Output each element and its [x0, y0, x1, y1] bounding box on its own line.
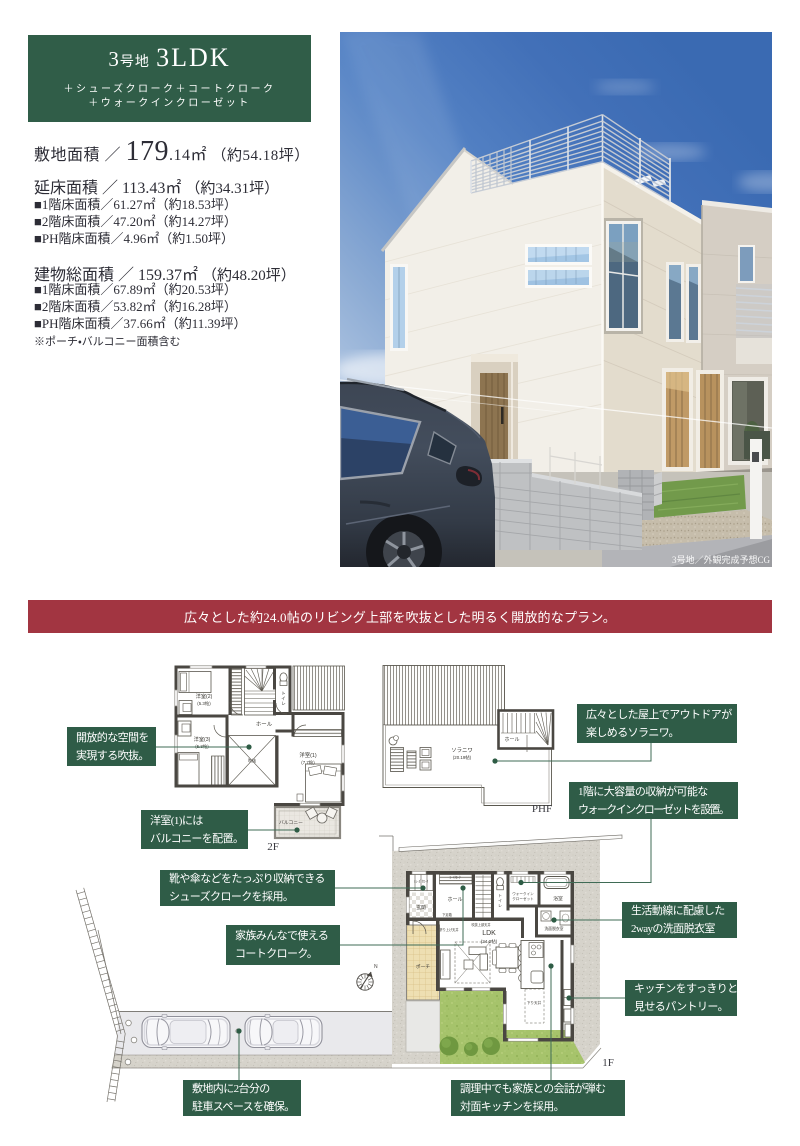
- svg-text:ポーチ: ポーチ: [416, 963, 431, 970]
- svg-text:1F: 1F: [602, 1057, 614, 1069]
- svg-text:洋室(1): 洋室(1): [299, 751, 317, 759]
- svg-text:レ: レ: [498, 903, 502, 908]
- svg-text:(5.3帖): (5.3帖): [197, 700, 211, 707]
- svg-text:(20.19帖): (20.19帖): [453, 754, 472, 761]
- svg-text:バルコニー: バルコニー: [279, 820, 303, 826]
- svg-text:レ: レ: [281, 701, 285, 706]
- svg-text:3号地／外観完成予想CG: 3号地／外観完成予想CG: [672, 554, 771, 565]
- svg-text:(7.7帖): (7.7帖): [301, 759, 315, 766]
- svg-text:ホール: ホール: [256, 721, 273, 728]
- svg-text:洋室(3): 洋室(3): [194, 735, 211, 743]
- svg-text:ホール: ホール: [504, 737, 519, 743]
- svg-text:浴室: 浴室: [553, 895, 563, 902]
- svg-text:2F: 2F: [267, 841, 279, 853]
- svg-text:折り上げ天井: 折り上げ天井: [439, 927, 458, 932]
- svg-text:洋室(2): 洋室(2): [196, 692, 213, 700]
- svg-text:ホール: ホール: [447, 897, 462, 903]
- svg-text:下足箱: 下足箱: [442, 912, 452, 917]
- svg-text:玄関: 玄関: [416, 904, 426, 911]
- svg-text:吹抜上部天井: 吹抜上部天井: [471, 922, 490, 927]
- svg-text:(24.0帖): (24.0帖): [481, 938, 498, 945]
- svg-text:ウォークイン: ウォークイン: [512, 891, 534, 896]
- svg-text:洗面脱衣室: 洗面脱衣室: [545, 926, 564, 931]
- svg-text:下り天井: 下り天井: [527, 1000, 542, 1005]
- svg-text:クローゼット: クローゼット: [512, 896, 534, 901]
- svg-text:LDK: LDK: [482, 930, 496, 937]
- svg-text:ｺｰﾄｸﾛｰｸ: ｺｰﾄｸﾛｰｸ: [449, 875, 461, 880]
- svg-text:N: N: [374, 964, 378, 970]
- svg-text:PHF: PHF: [532, 803, 552, 815]
- svg-text:吹抜: 吹抜: [248, 757, 257, 764]
- svg-text:ｼｭｰｽﾞｸﾛｰｸ: ｼｭｰｽﾞｸﾛｰｸ: [414, 879, 429, 884]
- svg-text:ソラニワ: ソラニワ: [451, 747, 473, 754]
